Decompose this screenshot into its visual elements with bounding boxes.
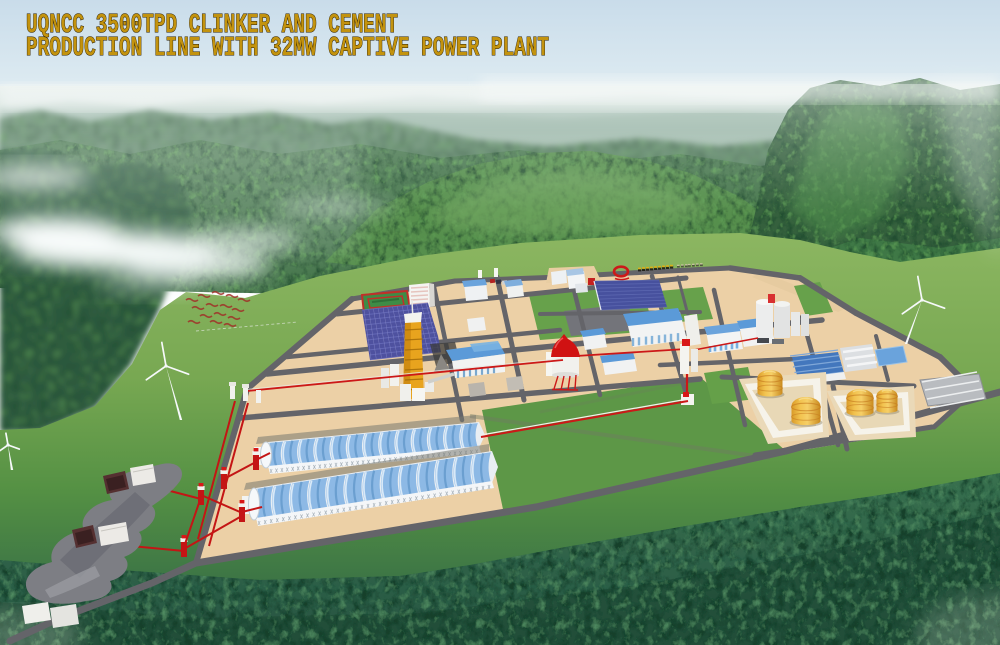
svg-text:PRODUCTION LINE WITH 32MW CAPT: PRODUCTION LINE WITH 32MW CAPTIVE POWER …	[26, 34, 549, 64]
